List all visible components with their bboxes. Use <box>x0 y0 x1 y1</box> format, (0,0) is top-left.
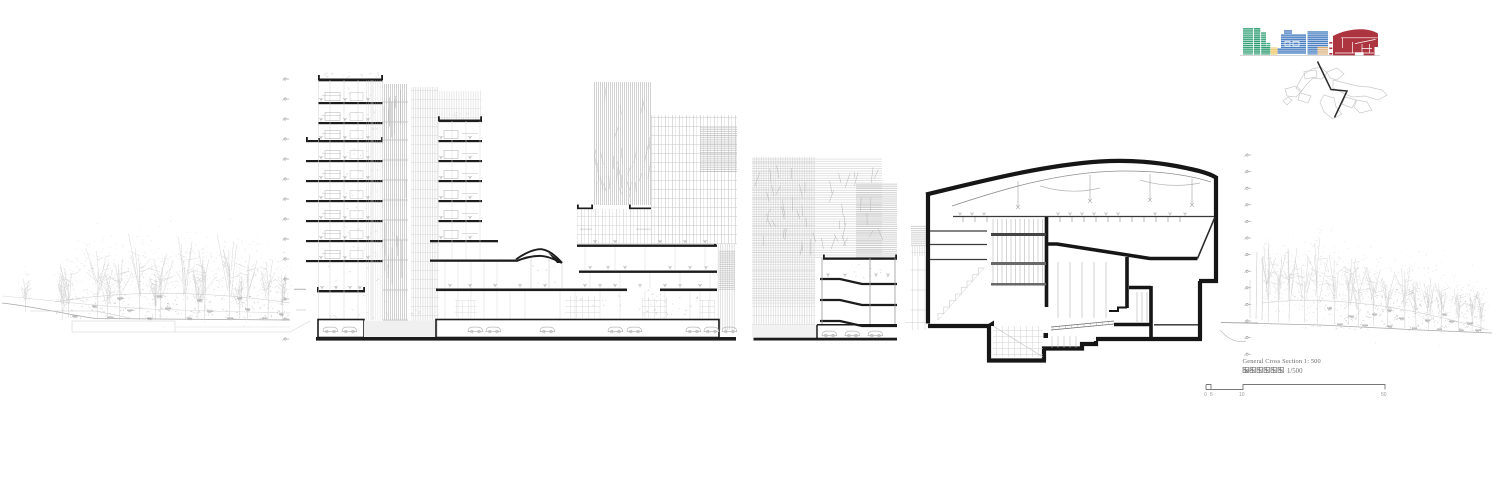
svg-text:50: 50 <box>1381 392 1387 398</box>
svg-text:General Cross Section 1: 500: General Cross Section 1: 500 <box>1243 358 1321 365</box>
svg-text:5: 5 <box>1210 392 1213 398</box>
svg-text:1/500: 1/500 <box>1287 368 1303 375</box>
svg-text:0: 0 <box>1204 392 1207 398</box>
svg-text:10: 10 <box>1239 392 1245 398</box>
